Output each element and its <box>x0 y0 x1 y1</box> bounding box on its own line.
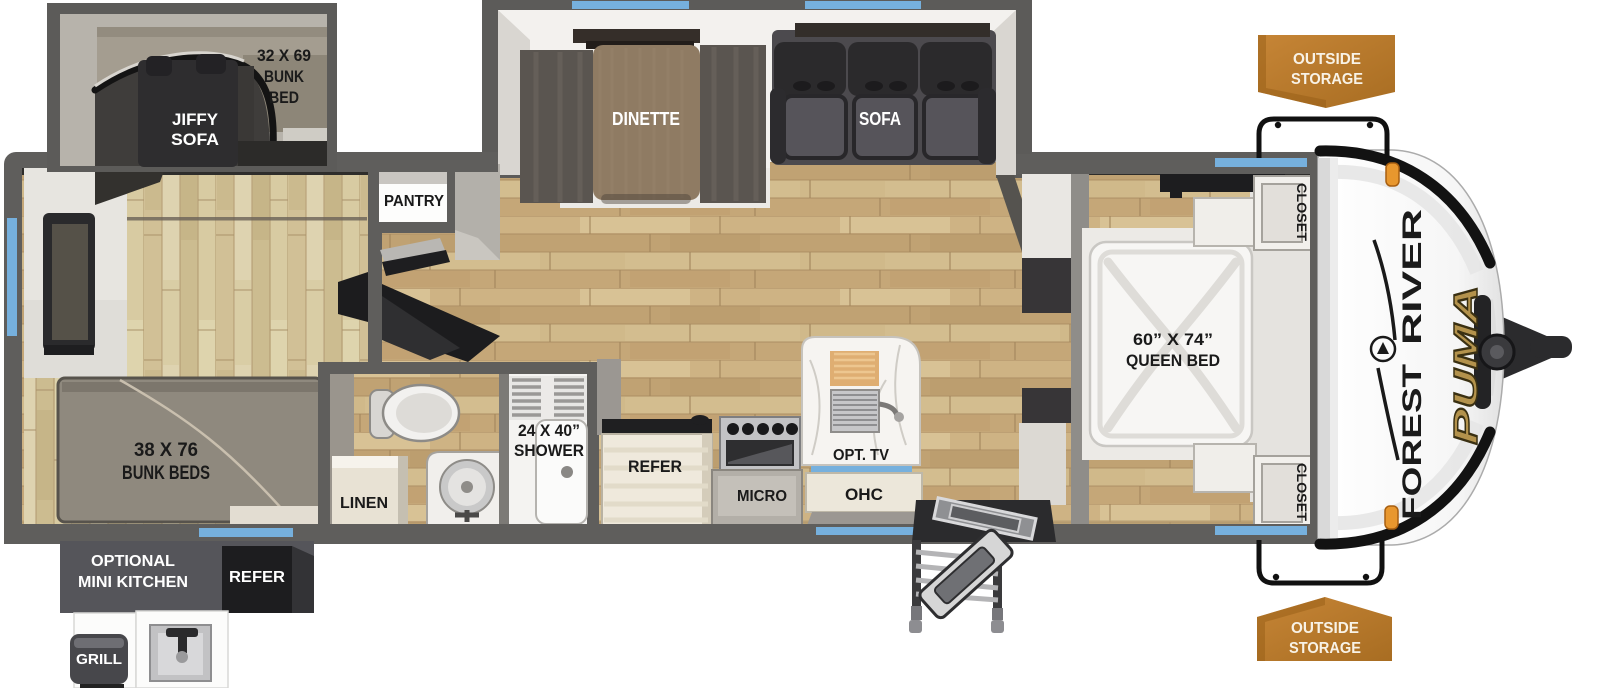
svg-text:FOREST: FOREST <box>1397 363 1427 520</box>
svg-text:OPTIONAL: OPTIONAL <box>91 553 175 570</box>
svg-text:REFER: REFER <box>229 569 285 586</box>
svg-text:PANTRY: PANTRY <box>384 193 444 210</box>
svg-text:OPT. TV: OPT. TV <box>833 447 889 464</box>
svg-text:38 X 76: 38 X 76 <box>134 440 198 461</box>
svg-text:PUMA: PUMA <box>1447 285 1484 445</box>
svg-text:SOFA: SOFA <box>171 130 219 149</box>
svg-text:BED: BED <box>269 88 299 107</box>
svg-text:GRILL: GRILL <box>76 651 122 668</box>
svg-text:STORAGE: STORAGE <box>1291 71 1363 88</box>
svg-text:OHC: OHC <box>845 485 883 504</box>
svg-text:MINI KITCHEN: MINI KITCHEN <box>78 574 188 591</box>
svg-text:QUEEN BED: QUEEN BED <box>1126 351 1220 370</box>
svg-text:STORAGE: STORAGE <box>1289 640 1361 657</box>
svg-text:JIFFY: JIFFY <box>172 110 219 129</box>
svg-text:REFER: REFER <box>628 457 682 476</box>
svg-text:SOFA: SOFA <box>859 109 901 129</box>
svg-text:60” X 74”: 60” X 74” <box>1133 330 1213 349</box>
svg-text:MICRO: MICRO <box>737 488 787 505</box>
svg-text:BUNK BEDS: BUNK BEDS <box>122 463 210 484</box>
svg-text:32 X 69: 32 X 69 <box>257 46 311 65</box>
svg-text:DINETTE: DINETTE <box>612 109 680 129</box>
svg-text:RIVER: RIVER <box>1397 209 1427 345</box>
svg-text:SHOWER: SHOWER <box>514 441 584 460</box>
svg-text:CLOSET: CLOSET <box>1294 463 1310 521</box>
svg-text:OUTSIDE: OUTSIDE <box>1293 51 1361 68</box>
svg-text:LINEN: LINEN <box>340 495 388 512</box>
svg-text:24 X 40”: 24 X 40” <box>518 421 580 440</box>
svg-text:CLOSET: CLOSET <box>1294 183 1310 241</box>
svg-text:BUNK: BUNK <box>264 67 305 86</box>
svg-text:OUTSIDE: OUTSIDE <box>1291 620 1359 637</box>
